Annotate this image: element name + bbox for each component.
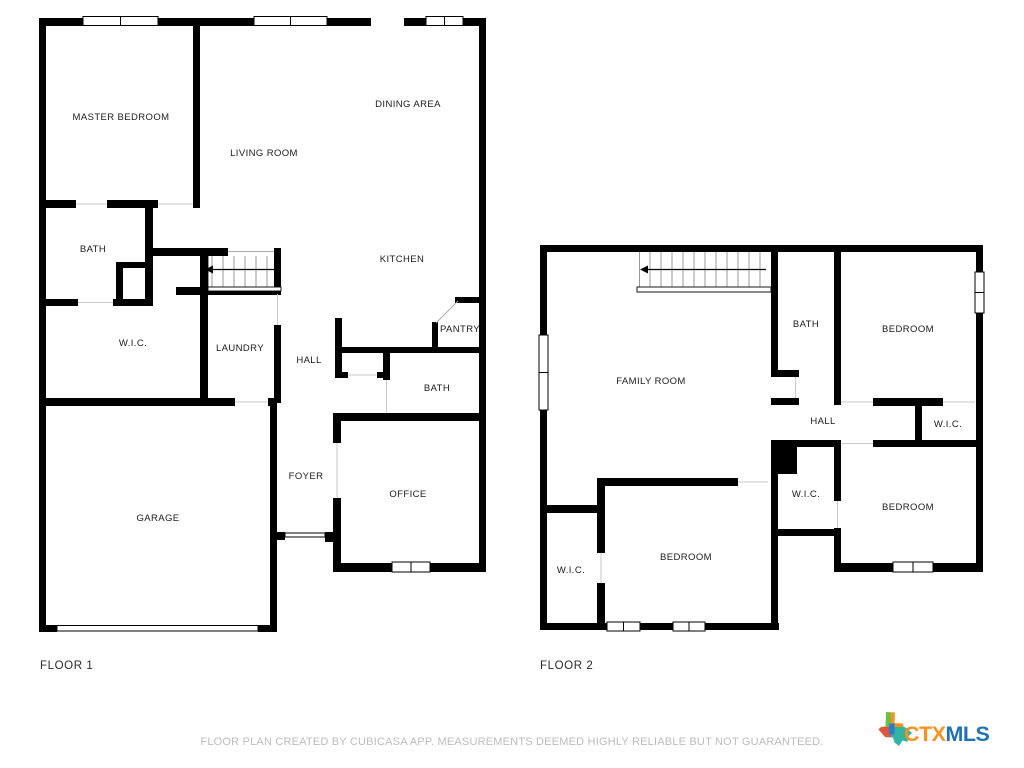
- window-icon: [392, 562, 430, 572]
- room-label-master-bedroom: MASTER BEDROOM: [73, 112, 170, 123]
- room-label-hall-f1: HALL: [296, 355, 321, 366]
- window-icon: [539, 335, 548, 410]
- floor-plan-canvas: MASTER BEDROOM LIVING ROOM DINING AREA B…: [0, 0, 1024, 768]
- window-icon: [607, 622, 640, 631]
- garage-door-icon: [57, 626, 258, 632]
- floor2-stairs: [637, 252, 771, 292]
- room-label-living-room: LIVING ROOM: [230, 148, 298, 159]
- floor2-title: FLOOR 2: [540, 660, 593, 672]
- room-label-foyer: FOYER: [289, 471, 324, 482]
- room-label-garage: GARAGE: [136, 513, 179, 524]
- svg-text:CTXMLS: CTXMLS: [904, 722, 990, 746]
- room-label-hall-f2: HALL: [810, 416, 835, 427]
- room-label-wic-f1: W.I.C.: [119, 338, 147, 349]
- room-label-family-room: FAMILY ROOM: [616, 376, 686, 387]
- logo-text-ctx: CTX: [904, 722, 947, 746]
- room-label-bath2-f1: BATH: [424, 383, 450, 394]
- room-label-wic-top-right: W.I.C.: [934, 419, 962, 430]
- room-label-office: OFFICE: [389, 489, 426, 500]
- floor1-plan: MASTER BEDROOM LIVING ROOM DINING AREA B…: [39, 17, 486, 673]
- window-icon: [254, 17, 327, 26]
- front-door-icon: [285, 533, 325, 537]
- room-label-bedroom-bottom-right: BEDROOM: [882, 502, 934, 513]
- floor-plan-page: { "floor1": { "label": "FLOOR 1", "rooms…: [0, 0, 1024, 768]
- room-label-laundry: LAUNDRY: [216, 343, 264, 354]
- room-label-kitchen: KITCHEN: [380, 254, 425, 265]
- window-icon: [83, 17, 158, 26]
- floor2-plan: FAMILY ROOM BATH BEDROOM HALL W.I.C. W.I…: [539, 245, 984, 672]
- floor1-labels: MASTER BEDROOM LIVING ROOM DINING AREA B…: [40, 99, 480, 672]
- room-label-wic-middle: W.I.C.: [792, 489, 820, 500]
- stairs-direction-arrow-icon: [640, 266, 648, 274]
- logo-text-mls: MLS: [946, 722, 990, 746]
- ctxmls-logo: CTXMLS: [876, 711, 990, 747]
- floor1-stairs: [205, 256, 281, 291]
- room-label-bedroom-bottom-middle: BEDROOM: [660, 552, 712, 563]
- window-icon: [426, 17, 463, 26]
- window-icon: [673, 622, 705, 631]
- window-icon: [975, 272, 984, 313]
- room-label-dining-area: DINING AREA: [375, 99, 441, 110]
- floor1-title: FLOOR 1: [40, 660, 93, 672]
- room-label-pantry: PANTRY: [440, 324, 480, 335]
- room-label-wic-bottom-left: W.I.C.: [557, 565, 585, 576]
- room-label-bath-f2: BATH: [793, 319, 819, 330]
- disclaimer-text: FLOOR PLAN CREATED BY CUBICASA APP. MEAS…: [200, 736, 823, 748]
- window-icon: [893, 562, 933, 572]
- room-label-bedroom-top-right: BEDROOM: [882, 324, 934, 335]
- room-label-bath-f1: BATH: [80, 244, 106, 255]
- floor1-walls: [39, 18, 486, 632]
